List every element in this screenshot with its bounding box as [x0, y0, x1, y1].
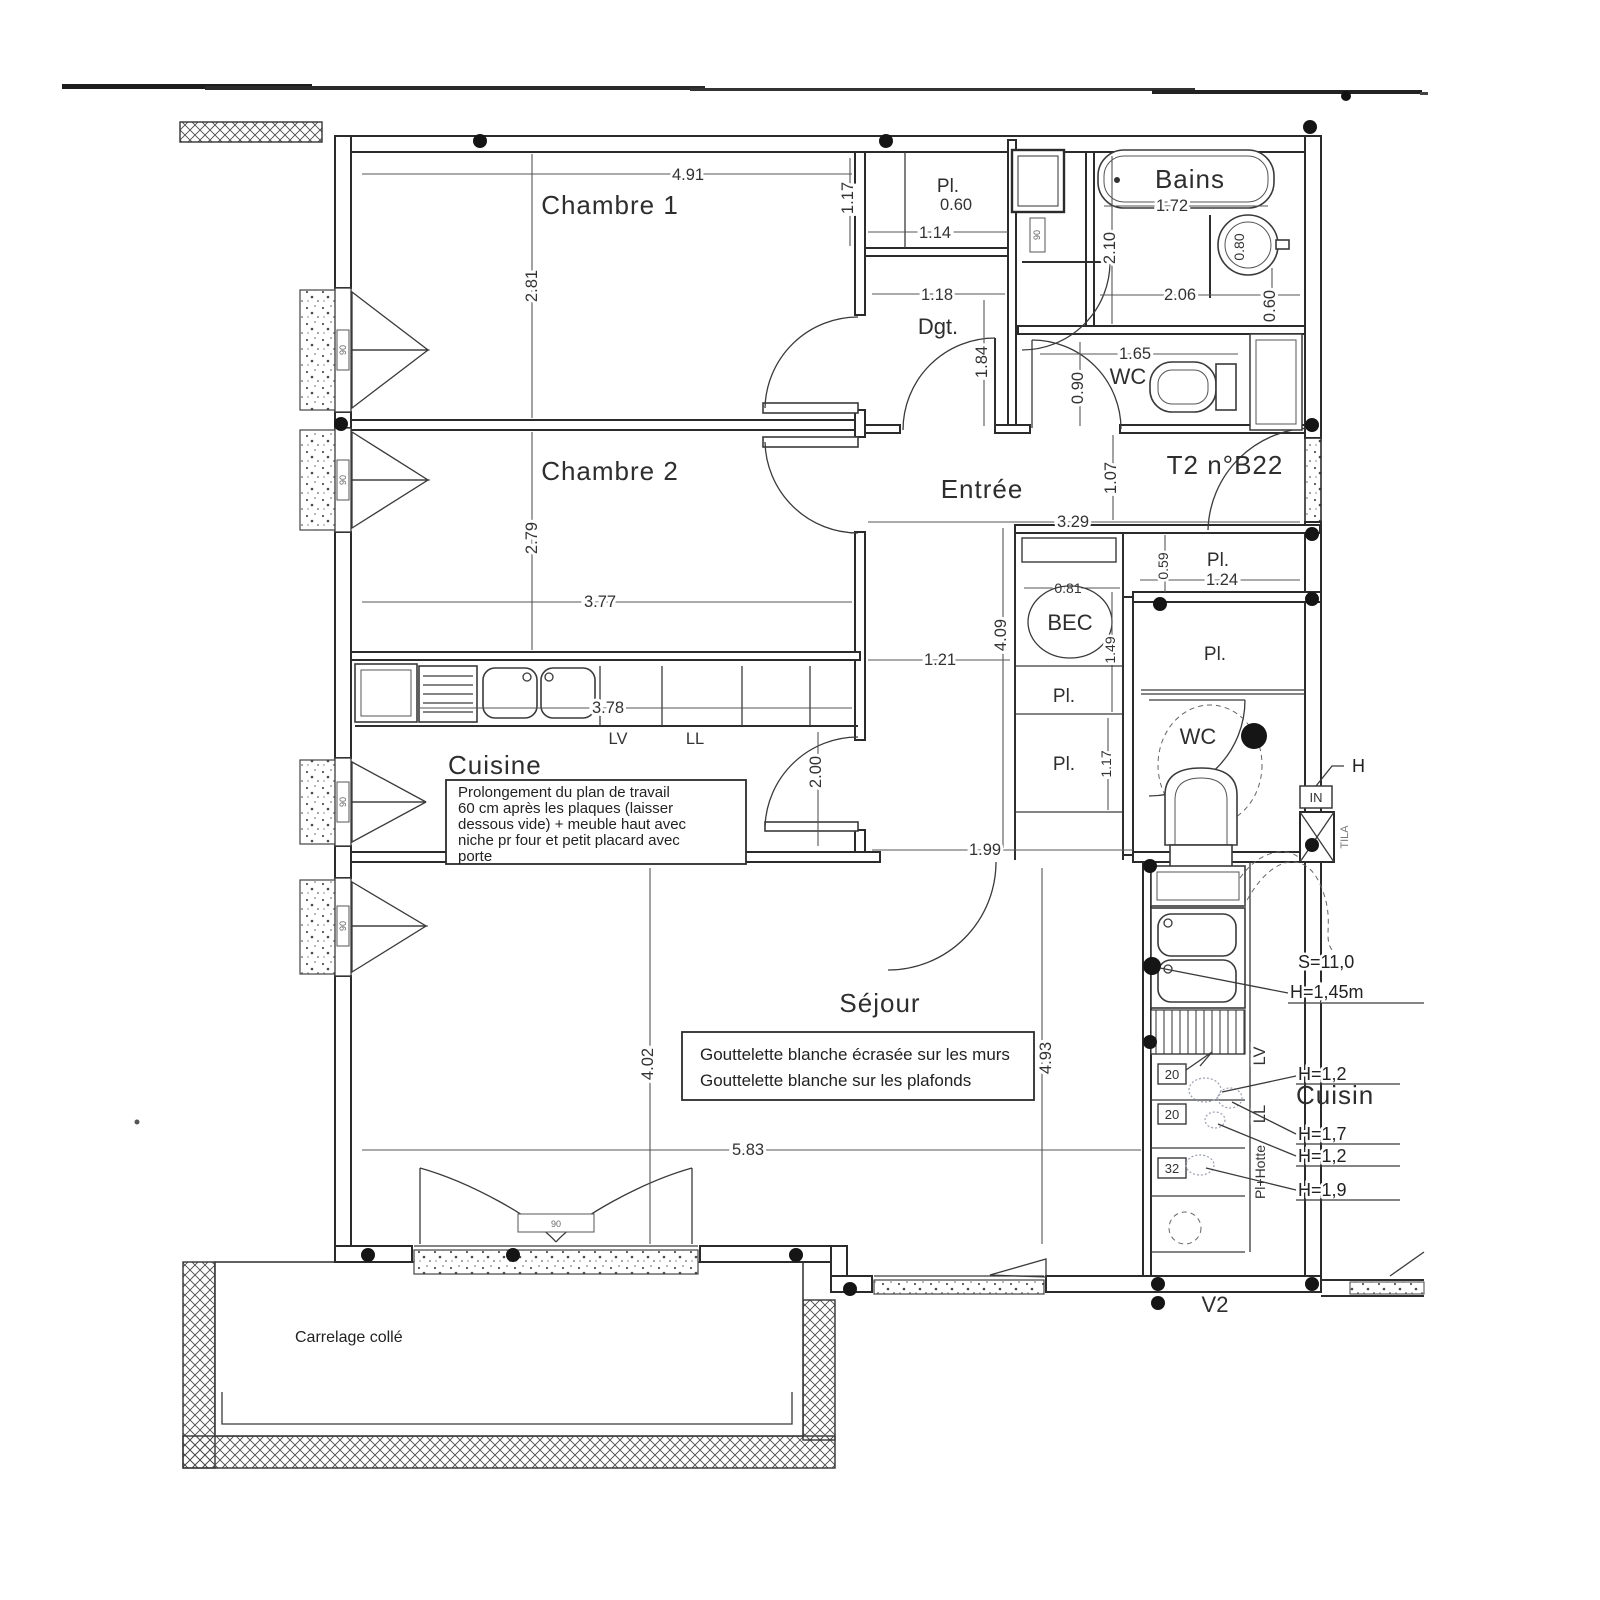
washbasin [1218, 215, 1278, 275]
dim-sejour-width: 5.83 [732, 1141, 764, 1159]
kitchen-sink-1 [483, 668, 537, 718]
window-tag: 90 [338, 475, 348, 485]
chambre2-door-arc [765, 442, 858, 533]
dim-bains-width: 2.06 [1164, 286, 1196, 304]
wc-right-label: WC [1180, 724, 1217, 749]
v2-label: V2 [1202, 1292, 1229, 1317]
dim-basin: 0.80 [1231, 233, 1247, 260]
closet-column: Pl. 1.24 0.59 0.81 BEC 1.49 Pl. Pl. 1.17 [1015, 533, 1300, 860]
cuisine-note-4: niche pr four et petit placard avec [458, 832, 680, 849]
closet-tag: 90 [1032, 230, 1042, 240]
room-wc-right: Pl. WC IN H TILA [1141, 644, 1365, 871]
worktop-height: H=1,45m [1290, 982, 1364, 1002]
window-chambre2: 90 [300, 428, 428, 532]
window-tag: 90 [338, 345, 348, 355]
window-chambre1: 90 [300, 288, 428, 412]
chambre1-door-arc [765, 317, 858, 408]
col-hood: Pl+Hotte [1252, 1145, 1268, 1199]
bec-label: BEC [1047, 610, 1092, 635]
room-wc-top: 1.65 WC 0.90 [1040, 334, 1302, 430]
wc-top-label: WC [1110, 364, 1147, 389]
door-tag: 90 [551, 1219, 561, 1229]
cuisine-door-leaf [765, 822, 858, 831]
dim-cuisine-door: 2.00 [807, 756, 825, 788]
dim-corridor: 1.17 [839, 182, 857, 214]
right-sink-1 [1158, 914, 1236, 956]
dim-entree-passage: 1.21 [924, 651, 956, 669]
dim-pl-entree-width: 1.24 [1206, 571, 1238, 589]
counter-lv: LV [609, 730, 628, 748]
dgt-label: Dgt. [918, 314, 958, 339]
dim-chambre2-width: 3.77 [584, 593, 616, 611]
sejour-door-arc [888, 862, 996, 970]
dim-dgt-width: 1.18 [921, 286, 953, 304]
dishwasher-front [1151, 1010, 1245, 1054]
cuisine-note-1: Prolongement du plan de travail [458, 784, 670, 801]
dim-chambre2-height: 2.79 [523, 522, 541, 554]
window-sejour: 90 [300, 878, 426, 976]
pl-col-lower-label: Pl. [1053, 754, 1075, 775]
col-lv: LV [1251, 1047, 1269, 1066]
chambre1-label: Chambre 1 [541, 190, 679, 220]
dim-sejour-hr: 4.93 [1037, 1042, 1055, 1074]
window-tag: 90 [338, 797, 348, 807]
dim-entree-length: 4.09 [992, 619, 1010, 651]
room-bains: Bains 1.72 2.10 0.80 2.06 0.60 [1098, 150, 1300, 324]
chambre2-label: Chambre 2 [541, 456, 679, 486]
dim-bec-width: 0.81 [1054, 580, 1081, 596]
floorplan-page: Carrelage collé [0, 0, 1600, 1600]
counter-ll: LL [686, 730, 704, 748]
entry-door-sill [1305, 438, 1321, 522]
chambre1-door-leaf [763, 403, 858, 413]
balcony-label: Carrelage collé [295, 1329, 403, 1346]
balcony-door: 90 [414, 1168, 698, 1274]
pl-wc-label: Pl. [1204, 644, 1226, 665]
cuisine-label: Cuisine [448, 750, 542, 780]
dim-bec-height: 1.49 [1102, 636, 1118, 663]
height-2: H=1,7 [1298, 1124, 1347, 1144]
pl-top-label: Pl. [937, 176, 959, 197]
sejour-label: Séjour [839, 988, 920, 1018]
floorplan-drawing: Carrelage collé [0, 0, 1600, 1600]
dim-pl-top-depth: 0.60 [940, 196, 972, 214]
dim-pl-top-width: 1.14 [919, 224, 951, 242]
windows-left: 90 90 90 90 [300, 288, 428, 976]
h-fragment: H [1352, 756, 1365, 776]
dim-entree-width: 3.29 [1057, 513, 1089, 531]
dim-chambre1-height: 2.81 [523, 270, 541, 302]
cuisine-right-label: Cuisin [1296, 1080, 1374, 1110]
height-4: H=1,9 [1298, 1180, 1347, 1200]
dim-bains-height: 2.10 [1101, 232, 1119, 264]
unit-label: T2 n°B22 [1167, 450, 1284, 480]
bains-door-arc [1022, 262, 1110, 350]
room-chambre2: Chambre 2 3.77 2.79 [362, 432, 852, 650]
pl-entree-label: Pl. [1207, 550, 1229, 571]
kitchen-sink-2 [541, 668, 595, 718]
dim-pl-col-height: 1.17 [1098, 750, 1114, 777]
col-ll: LL [1251, 1105, 1269, 1123]
tag-20a: 20 [1165, 1067, 1179, 1082]
duct-fragment: TILA [1339, 825, 1351, 849]
chambre2-door-leaf [763, 437, 858, 447]
room-chambre1: 4.91 2.81 Chambre 1 [362, 154, 852, 418]
sejour-note-1: Gouttelette blanche écrasée sur les murs [700, 1045, 1010, 1064]
corridor-pl-dgt: 1.17 Pl. 0.60 1.14 1.18 Dgt. 1.84 90 [839, 150, 1064, 426]
dim-counter: 3.78 [592, 699, 624, 717]
dim-bains-side: 0.60 [1261, 290, 1279, 322]
dim-bath-length: 1.72 [1156, 197, 1188, 215]
room-sejour: 1.99 Séjour Gouttelette blanche écrasée … [362, 841, 1141, 1244]
dim-chambre1-width: 4.91 [672, 166, 704, 184]
sejour-note-2: Gouttelette blanche sur les plafonds [700, 1071, 971, 1090]
dim-wc-top-width: 1.65 [1119, 345, 1151, 363]
cuisine-note-3: dessous vide) + meuble haut avec [458, 816, 687, 833]
dim-sejour-hl: 4.02 [639, 1048, 657, 1080]
dim-pl-entree-depth: 0.59 [1155, 552, 1171, 579]
tag-32: 32 [1165, 1161, 1179, 1176]
cuisine-note-5: porte [458, 848, 492, 865]
dim-entree-offset: 1.07 [1102, 462, 1120, 494]
in-box-label: IN [1310, 790, 1323, 805]
toilet-right [1165, 768, 1237, 845]
tag-20b: 20 [1165, 1107, 1179, 1122]
dim-sejour-opening: 1.99 [969, 841, 1001, 859]
height-3: H=1,2 [1298, 1146, 1347, 1166]
pl-col-upper-label: Pl. [1053, 686, 1075, 707]
parapet-hatch-top [180, 122, 322, 142]
kitchen-column: H=1,45m S=11,0 20 20 32 LV LL Pl+Hotte H… [1143, 852, 1424, 1252]
dim-dgt-height: 1.84 [973, 346, 991, 378]
dim-wc-top-height: 0.90 [1069, 372, 1087, 404]
window-tag: 90 [338, 921, 348, 931]
entree-label: Entrée [941, 474, 1024, 504]
window-cuisine: 90 [300, 758, 426, 846]
cuisine-note-2: 60 cm après les plaques (laisser [458, 800, 673, 817]
room-cuisine: 3.78 LV LL Cuisine Prolongement du plan … [355, 664, 858, 865]
surface-label: S=11,0 [1298, 952, 1354, 972]
bains-label: Bains [1155, 164, 1225, 194]
